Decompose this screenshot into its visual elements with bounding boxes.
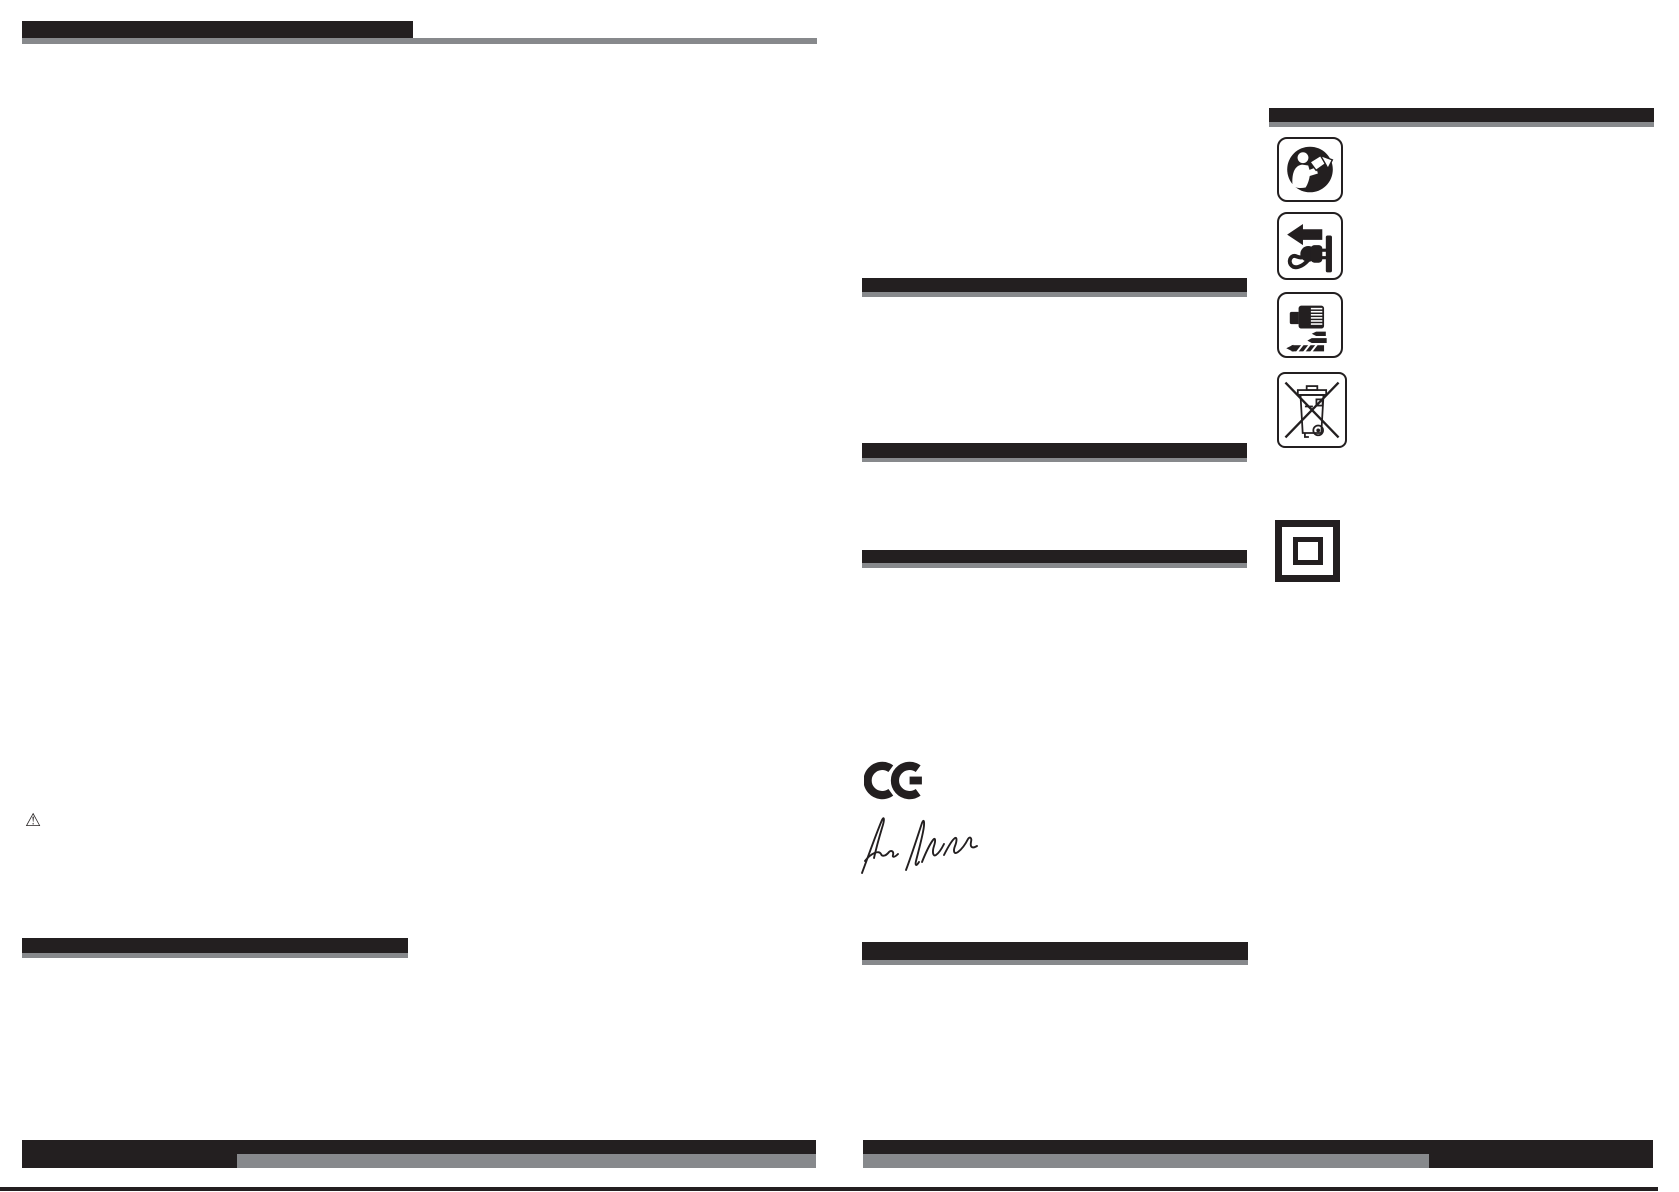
double-insulation-icon [1275, 520, 1340, 582]
right-footer-page-block [1429, 1140, 1653, 1168]
right-section-heading-bar-2 [862, 443, 1247, 458]
weee-no-trash-icon [1277, 372, 1347, 448]
left-footer [22, 1140, 816, 1168]
left-footer-page-block [22, 1140, 237, 1168]
double-insulation-inner-square [1293, 537, 1323, 565]
scanned-manual-spread: ⚠ [0, 0, 1679, 1192]
right-section-heading-rule-4 [862, 960, 1248, 965]
left-section-heading-bar [22, 938, 408, 953]
left-footer-rule-gray [237, 1154, 816, 1168]
left-header-title-bar [22, 21, 413, 38]
ce-mark [864, 757, 926, 808]
right-footer [863, 1140, 1653, 1168]
read-manual-icon [1277, 137, 1343, 202]
left-header-rule [22, 38, 817, 44]
right-section-heading-rule-2 [862, 458, 1247, 462]
signature [856, 810, 986, 882]
right-section-heading-bar-3 [862, 550, 1247, 563]
left-section-heading-rule [22, 953, 408, 958]
drill-chuck-bits-icon [1277, 292, 1343, 358]
left-footer-rule-black [237, 1140, 816, 1154]
right-section-heading-rule-3 [862, 563, 1247, 568]
right-section-heading-rule-1 [862, 292, 1247, 297]
bottom-scan-edge-line [0, 1187, 1658, 1191]
right-section-heading-bar-1 [862, 278, 1247, 292]
warning-triangle-icon: ⚠ [25, 812, 41, 830]
right-section-heading-bar-4 [862, 942, 1248, 960]
unplug-icon [1277, 212, 1343, 280]
right-footer-rule-gray [863, 1154, 1429, 1168]
right-header-rule [1269, 122, 1654, 127]
right-header-title-bar [1269, 108, 1654, 122]
